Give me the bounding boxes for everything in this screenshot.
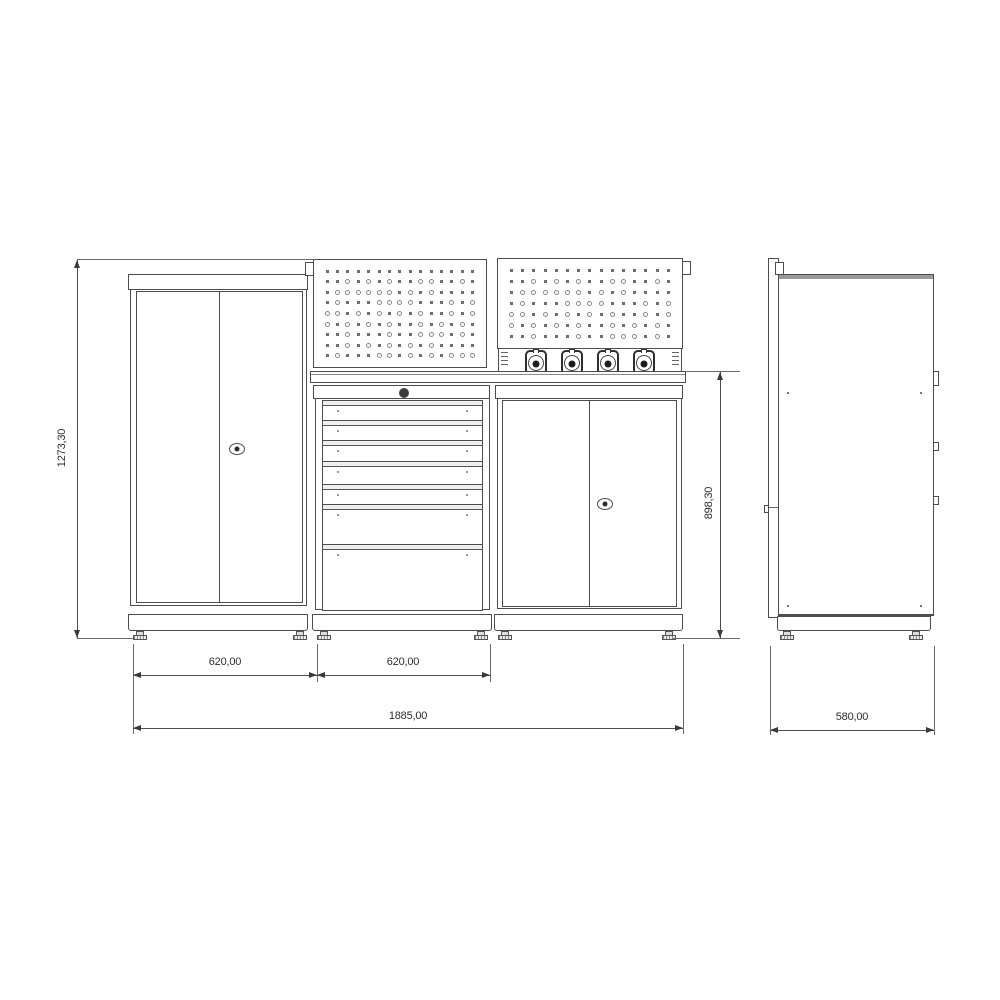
pegboard-hole xyxy=(520,290,525,295)
extension-line xyxy=(686,371,740,372)
pegboard-hole xyxy=(521,280,524,283)
pegboard-hole xyxy=(461,301,464,304)
pegboard-hole xyxy=(667,335,670,338)
pegboard-hole xyxy=(397,300,402,305)
pegboard-hole xyxy=(387,300,392,305)
pegboard-hole xyxy=(346,354,349,357)
drawer-handle xyxy=(323,441,482,446)
pegboard-hole xyxy=(356,311,361,316)
pegboard-hole xyxy=(521,335,524,338)
pegboard-hole xyxy=(430,270,433,273)
pegboard-hole xyxy=(461,291,464,294)
drawer xyxy=(322,504,483,545)
extension-line xyxy=(77,259,313,260)
worktop-edge-line xyxy=(311,374,685,375)
pegboard-hole xyxy=(326,301,329,304)
pegboard-hole xyxy=(576,279,581,284)
arrowhead xyxy=(717,372,723,380)
leveling-foot xyxy=(474,631,488,641)
socket-core xyxy=(605,360,612,367)
pegboard-hole xyxy=(387,343,392,348)
pegboard-hole xyxy=(449,353,454,358)
pegboard-left xyxy=(313,259,487,368)
pegboard-hole xyxy=(345,343,350,348)
pegboard-hole xyxy=(566,269,569,272)
socket-core xyxy=(569,360,576,367)
side-top-panel xyxy=(779,275,933,279)
pegboard-hole xyxy=(450,344,453,347)
leveling-foot xyxy=(780,631,794,641)
pegboard-hole xyxy=(610,323,615,328)
pegboard-hole xyxy=(600,280,603,283)
pegboard-hole xyxy=(429,332,434,337)
pegboard-hole xyxy=(633,302,636,305)
pegboard-hole xyxy=(532,313,535,316)
socket-notch xyxy=(605,349,611,353)
pegboard-hole xyxy=(430,312,433,315)
pegboard-hole xyxy=(336,344,339,347)
extension-line xyxy=(673,638,740,639)
pegboard-hole xyxy=(565,301,570,306)
pegboard-hole xyxy=(632,334,637,339)
pegboard-hole xyxy=(611,302,614,305)
arrowhead xyxy=(717,630,723,638)
pegboard-hole xyxy=(387,322,392,327)
pegboard-hole xyxy=(667,324,670,327)
pegboard-hole xyxy=(377,300,382,305)
pegboard-hole xyxy=(622,269,625,272)
pegboard-hole xyxy=(531,290,536,295)
pegboard-hole xyxy=(600,269,603,272)
pegboard-hole xyxy=(408,300,413,305)
leveling-foot xyxy=(293,631,307,641)
pegboard-hole xyxy=(397,311,402,316)
pegboard-hole xyxy=(555,302,558,305)
pegboard-hole xyxy=(408,353,413,358)
pegboard-hole xyxy=(611,269,614,272)
pegboard-hole xyxy=(378,280,381,283)
side-plinth xyxy=(777,616,931,631)
pegboard-hole xyxy=(377,353,382,358)
pegboard-hole xyxy=(409,312,412,315)
pegboard-hole xyxy=(510,291,513,294)
pegboard-hole xyxy=(450,280,453,283)
extension-line xyxy=(490,644,491,682)
pegboard-hole xyxy=(398,280,401,283)
pegboard-hole xyxy=(470,300,475,305)
pegboard-hole xyxy=(326,280,329,283)
drawer-screw xyxy=(466,554,468,556)
pegboard-hole xyxy=(644,335,647,338)
leveling-foot xyxy=(133,631,147,641)
pegboard-hole xyxy=(450,333,453,336)
pegboard-right xyxy=(497,258,683,349)
pegboard-hole xyxy=(440,312,443,315)
leveling-foot xyxy=(317,631,331,641)
pegboard-hole xyxy=(622,313,625,316)
pegboard-hole xyxy=(398,323,401,326)
drawer-handle xyxy=(323,401,482,406)
pegboard-hole xyxy=(408,343,413,348)
pegboard-hole xyxy=(326,270,329,273)
pegboard-hole xyxy=(566,335,569,338)
drawer-screw xyxy=(337,471,339,473)
drawer-handle xyxy=(323,505,482,510)
pegboard-hole xyxy=(357,323,360,326)
side-body xyxy=(778,274,934,616)
pegboard-hole xyxy=(335,311,340,316)
left-cabinet-top-cap xyxy=(128,274,308,290)
right-cabinet-top-rail xyxy=(495,385,683,399)
pegboard-hole xyxy=(470,311,475,316)
socket-notch xyxy=(641,349,647,353)
extension-line xyxy=(770,646,771,735)
pegboard-hole xyxy=(336,323,339,326)
pegboard-hole xyxy=(471,323,474,326)
pegboard-hole xyxy=(366,343,371,348)
pegboard-hole xyxy=(632,323,637,328)
pegboard-hole xyxy=(440,291,443,294)
pegboard-hole xyxy=(398,291,401,294)
pegboard-hole xyxy=(419,354,422,357)
pegboard-hole xyxy=(655,323,660,328)
pegboard-hole xyxy=(357,344,360,347)
pegboard-hole xyxy=(656,269,659,272)
pegboard-hole xyxy=(378,344,381,347)
drawer xyxy=(322,400,483,421)
pegboard-hole xyxy=(588,324,591,327)
right-cabinet-plinth xyxy=(494,614,683,631)
pegboard-hole xyxy=(600,324,603,327)
pegboard-hole xyxy=(471,291,474,294)
left-cabinet-lock-icon xyxy=(229,443,245,455)
pegboard-hole xyxy=(366,279,371,284)
pegboard-hole xyxy=(599,301,604,306)
pegboard-hole xyxy=(387,279,392,284)
corner-screw xyxy=(920,392,922,394)
pegboard-hole xyxy=(520,301,525,306)
pegboard-hole xyxy=(633,280,636,283)
pegboard-hole xyxy=(357,354,360,357)
drawer xyxy=(322,420,483,441)
pegboard-hole xyxy=(599,290,604,295)
pegboard-hole xyxy=(576,334,581,339)
pegboard-hole xyxy=(644,269,647,272)
pegboard-hole xyxy=(643,312,648,317)
corner-screw xyxy=(787,392,789,394)
pegboard-hole xyxy=(667,280,670,283)
extension-line xyxy=(934,646,935,735)
pegboard-hole xyxy=(666,301,671,306)
arrowhead xyxy=(133,672,141,678)
arrowhead xyxy=(74,260,80,268)
drawer-screw xyxy=(466,450,468,452)
pegboard-hole xyxy=(460,279,465,284)
pegboard-hole xyxy=(509,323,514,328)
pegboard-hole xyxy=(450,291,453,294)
pegboard-hole xyxy=(440,354,443,357)
pegboard-hole xyxy=(346,270,349,273)
arrowhead xyxy=(74,630,80,638)
pegboard-hole xyxy=(471,344,474,347)
pegboard-hole xyxy=(409,323,412,326)
pegboard-hole xyxy=(398,333,401,336)
arrowhead xyxy=(309,672,317,678)
pegboard-hole xyxy=(510,302,513,305)
pegboard-hole xyxy=(377,290,382,295)
pegboard-hole xyxy=(418,322,423,327)
pegboard-hole xyxy=(509,312,514,317)
drawer-screw xyxy=(337,430,339,432)
leveling-foot xyxy=(498,631,512,641)
pegboard-hole xyxy=(429,290,434,295)
dimension-line xyxy=(133,675,317,676)
drawer-handle xyxy=(323,462,482,467)
pegboard-hole xyxy=(587,312,592,317)
drawer-screw xyxy=(466,514,468,516)
drawer-screw xyxy=(466,494,468,496)
pegboard-hole xyxy=(357,333,360,336)
pegboard-hole xyxy=(367,270,370,273)
pegboard-hole xyxy=(346,301,349,304)
pegboard-hole xyxy=(554,290,559,295)
pegboard-hole xyxy=(622,302,625,305)
pegboard-hole xyxy=(460,332,465,337)
side-connector-tab xyxy=(764,505,769,513)
arrowhead xyxy=(926,727,934,733)
pegboard-hole xyxy=(554,279,559,284)
side-connector-tab xyxy=(933,496,939,505)
socket-core xyxy=(533,360,540,367)
drawer-screw xyxy=(337,494,339,496)
pegboard-hole xyxy=(666,312,671,317)
side-connector-tab xyxy=(933,442,939,451)
pegboard-hole xyxy=(577,269,580,272)
pegboard-hole xyxy=(429,343,434,348)
pegboard-hole xyxy=(643,301,648,306)
drawer-unit-lock-icon xyxy=(399,388,409,398)
pegboard-hole xyxy=(440,280,443,283)
dimension-line xyxy=(317,675,490,676)
dimension-label-overall-width: 1885,00 xyxy=(378,710,438,722)
leveling-foot xyxy=(662,631,676,641)
arrowhead xyxy=(133,725,141,731)
pegboard-hole xyxy=(656,313,659,316)
pegboard-hole xyxy=(656,291,659,294)
pegboard-hole xyxy=(418,279,423,284)
pegboard-hole xyxy=(610,312,615,317)
dimension-line xyxy=(720,372,721,638)
pegboard-hole xyxy=(667,269,670,272)
pegboard-hole xyxy=(387,353,392,358)
pegboard-hole xyxy=(377,311,382,316)
pegboard-hole xyxy=(588,335,591,338)
pegboard-hole xyxy=(345,290,350,295)
pegboard-hole xyxy=(655,334,660,339)
pegboard-hole xyxy=(357,270,360,273)
pegboard-hole xyxy=(460,322,465,327)
extension-line xyxy=(77,638,135,639)
side-wall-panel-joint xyxy=(769,507,778,508)
pegboard-hole xyxy=(357,301,360,304)
pegboard-hole xyxy=(326,354,329,357)
pegboard-hole xyxy=(366,290,371,295)
pegboard-hole xyxy=(378,333,381,336)
pegboard-hole xyxy=(461,344,464,347)
arrowhead xyxy=(317,672,325,678)
socket-core xyxy=(641,360,648,367)
drawer xyxy=(322,484,483,505)
pegboard-hole xyxy=(555,313,558,316)
dimension-line xyxy=(77,260,78,638)
pegboard-hole xyxy=(644,324,647,327)
pegboard-hole xyxy=(326,333,329,336)
pegboard-hole xyxy=(577,313,580,316)
right-cabinet-door-left xyxy=(502,400,590,607)
pegboard-hole xyxy=(510,335,513,338)
pegboard-hole xyxy=(367,301,370,304)
pegboard-hole xyxy=(576,323,581,328)
pegboard-hole xyxy=(440,301,443,304)
drawer xyxy=(322,440,483,462)
pegboard-hole xyxy=(326,344,329,347)
dimension-label-bench-height: 898,30 xyxy=(703,481,717,525)
dimension-line xyxy=(133,728,683,729)
pegboard-hole xyxy=(336,270,339,273)
leveling-foot xyxy=(909,631,923,641)
drawer-screw xyxy=(337,410,339,412)
pegboard-hole xyxy=(470,353,475,358)
pegboard-hole xyxy=(326,291,329,294)
pegboard-hole xyxy=(345,279,350,284)
pegboard-hole xyxy=(622,324,625,327)
pegboard-hole xyxy=(449,311,454,316)
pegboard-hole xyxy=(419,270,422,273)
pegboard-hole xyxy=(471,280,474,283)
pegboard-hole xyxy=(544,335,547,338)
pegboard-hole xyxy=(510,280,513,283)
pegboard-hole xyxy=(532,302,535,305)
pegboard-hole xyxy=(544,269,547,272)
drawer-stack xyxy=(322,400,483,610)
pegboard-hole xyxy=(554,323,559,328)
pegboard-hole xyxy=(430,301,433,304)
dimension-label-depth: 580,00 xyxy=(822,711,882,723)
dimension-label-overall-height: 1273,30 xyxy=(56,423,70,473)
extension-line xyxy=(683,644,684,734)
pegboard-hole xyxy=(544,324,547,327)
drawer-screw xyxy=(466,471,468,473)
pegboard-hole xyxy=(565,312,570,317)
power-strip-vents-left-icon xyxy=(501,352,508,368)
pegboard-hole xyxy=(531,279,536,284)
pegboard-hole xyxy=(532,269,535,272)
pegboard-hole xyxy=(366,322,371,327)
pegboard-hole xyxy=(336,333,339,336)
pegboard-hole xyxy=(633,269,636,272)
drawer xyxy=(322,461,483,485)
left-cabinet-plinth xyxy=(128,614,308,631)
pegboard-hole xyxy=(367,354,370,357)
pegboard-hole xyxy=(387,332,392,337)
extension-line xyxy=(133,644,134,734)
pegboard-hole xyxy=(600,335,603,338)
pegboard-hole xyxy=(520,312,525,317)
pegboard-hole xyxy=(356,290,361,295)
right-cabinet-lock-icon xyxy=(597,498,613,510)
drawer-handle xyxy=(323,485,482,490)
pegboard-hole xyxy=(388,312,391,315)
socket-notch xyxy=(533,349,539,353)
drawer-screw xyxy=(466,430,468,432)
corner-screw xyxy=(920,605,922,607)
pegboard-hole xyxy=(621,279,626,284)
pegboard-hole xyxy=(521,269,524,272)
pegboard-hole xyxy=(633,313,636,316)
pegboard-hole xyxy=(521,324,524,327)
pegboard-hole xyxy=(357,280,360,283)
pegboard-hole xyxy=(429,279,434,284)
pegboard-hole xyxy=(449,300,454,305)
pegboard-hole xyxy=(667,291,670,294)
drawer-unit-plinth xyxy=(312,614,492,631)
pegboard-hole xyxy=(543,312,548,317)
pegboard-hole xyxy=(419,344,422,347)
pegboard-hole xyxy=(544,302,547,305)
pegboard-hole xyxy=(510,269,513,272)
power-strip-vents-right-icon xyxy=(672,352,679,368)
pegboard-hole xyxy=(418,311,423,316)
technical-drawing-canvas: 1273,30 898,30 620,00 620,00 1885,00 xyxy=(0,0,1000,1000)
pegboard-hole xyxy=(621,334,626,339)
drawer-screw xyxy=(337,450,339,452)
arrowhead xyxy=(675,725,683,731)
pegboard-hole xyxy=(398,354,401,357)
pegboard-hole xyxy=(471,270,474,273)
pegboard-hole xyxy=(440,270,443,273)
pegboard-hole xyxy=(633,291,636,294)
drawer-screw xyxy=(337,514,339,516)
pegboard-hole xyxy=(409,270,412,273)
drawer xyxy=(322,544,483,611)
pegboard-hole xyxy=(461,312,464,315)
pegboard-hole xyxy=(345,332,350,337)
corner-screw xyxy=(787,605,789,607)
pegboard-hole xyxy=(588,280,591,283)
pegboard-hole xyxy=(610,334,615,339)
pegboard-hole xyxy=(655,279,660,284)
pegboard-hole xyxy=(419,291,422,294)
pegboard-hole xyxy=(461,270,464,273)
pegboard-hole xyxy=(439,332,444,337)
pegboard-hole xyxy=(576,290,581,295)
pegboard-hole xyxy=(335,353,340,358)
pegboard-hole xyxy=(367,333,370,336)
pegboard-hole xyxy=(345,322,350,327)
pegboard-hole xyxy=(439,322,444,327)
pegboard-hole xyxy=(346,312,349,315)
pegboard-hole xyxy=(644,291,647,294)
pegboard-hole xyxy=(471,333,474,336)
pegboard-hole xyxy=(418,332,423,337)
pegboard-hole xyxy=(387,290,392,295)
pegboard-hole xyxy=(419,301,422,304)
pegboard-hole xyxy=(335,300,340,305)
pegboard-hole xyxy=(544,280,547,283)
pegboard-hole xyxy=(460,353,465,358)
pegboard-hole xyxy=(430,323,433,326)
lock-core xyxy=(603,502,608,507)
